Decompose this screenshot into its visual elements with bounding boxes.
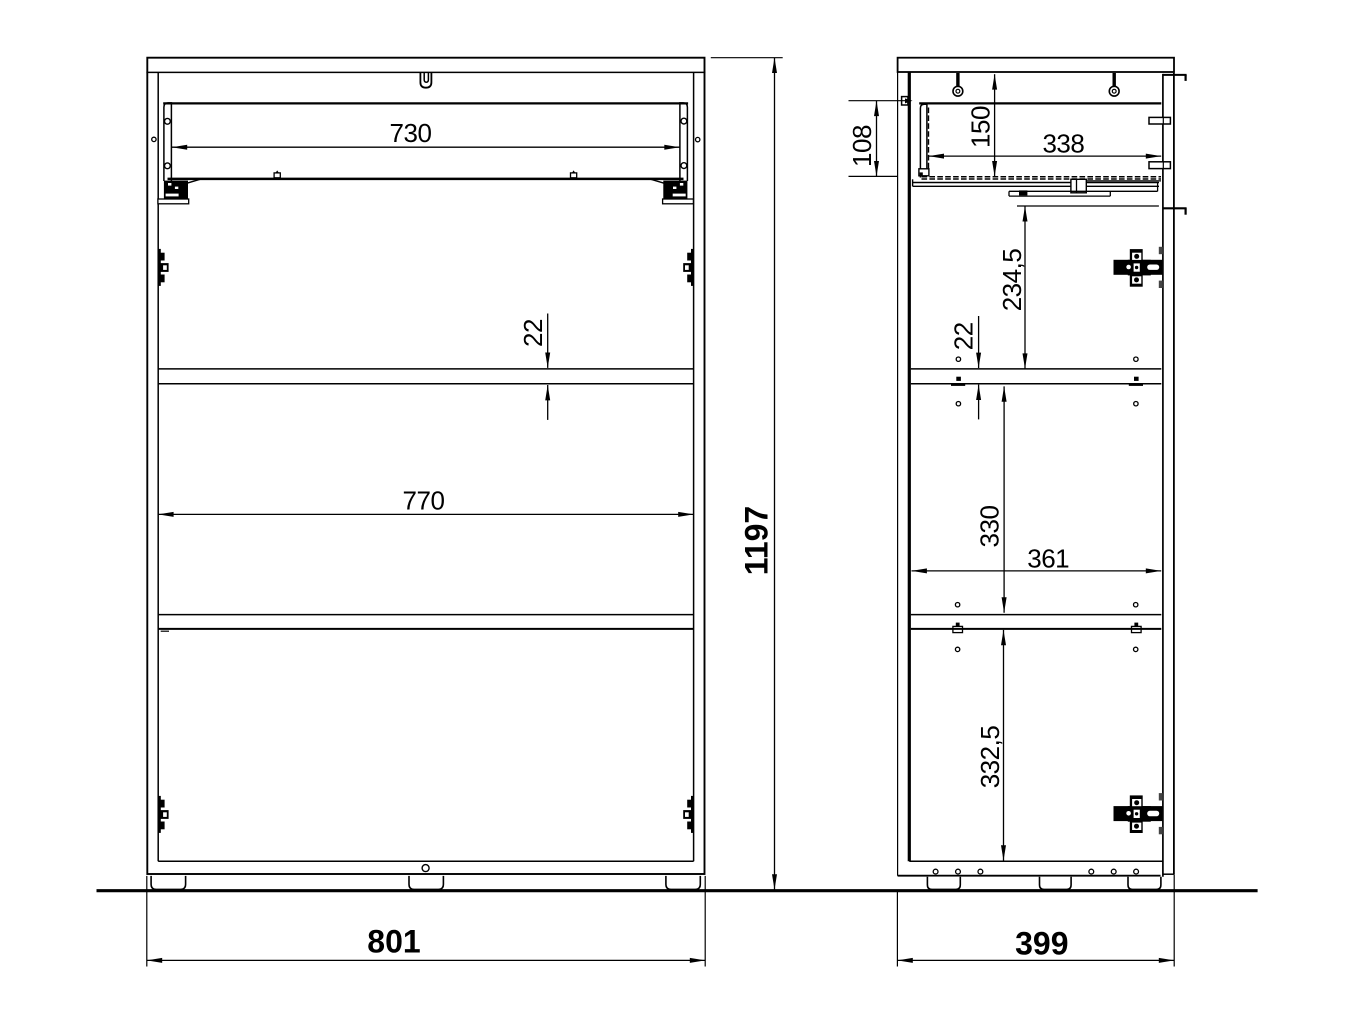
svg-text:108: 108 <box>847 125 877 167</box>
svg-text:234,5: 234,5 <box>997 249 1027 312</box>
svg-text:801: 801 <box>367 924 420 960</box>
svg-text:22: 22 <box>949 322 979 350</box>
svg-text:770: 770 <box>403 485 445 515</box>
svg-text:150: 150 <box>966 106 996 148</box>
svg-text:22: 22 <box>518 319 548 347</box>
svg-text:338: 338 <box>1042 129 1084 159</box>
svg-text:361: 361 <box>1027 543 1069 573</box>
svg-text:730: 730 <box>390 118 432 148</box>
svg-text:1197: 1197 <box>739 506 775 575</box>
svg-text:332,5: 332,5 <box>975 726 1005 789</box>
svg-text:399: 399 <box>1015 925 1068 961</box>
svg-text:330: 330 <box>974 506 1004 548</box>
